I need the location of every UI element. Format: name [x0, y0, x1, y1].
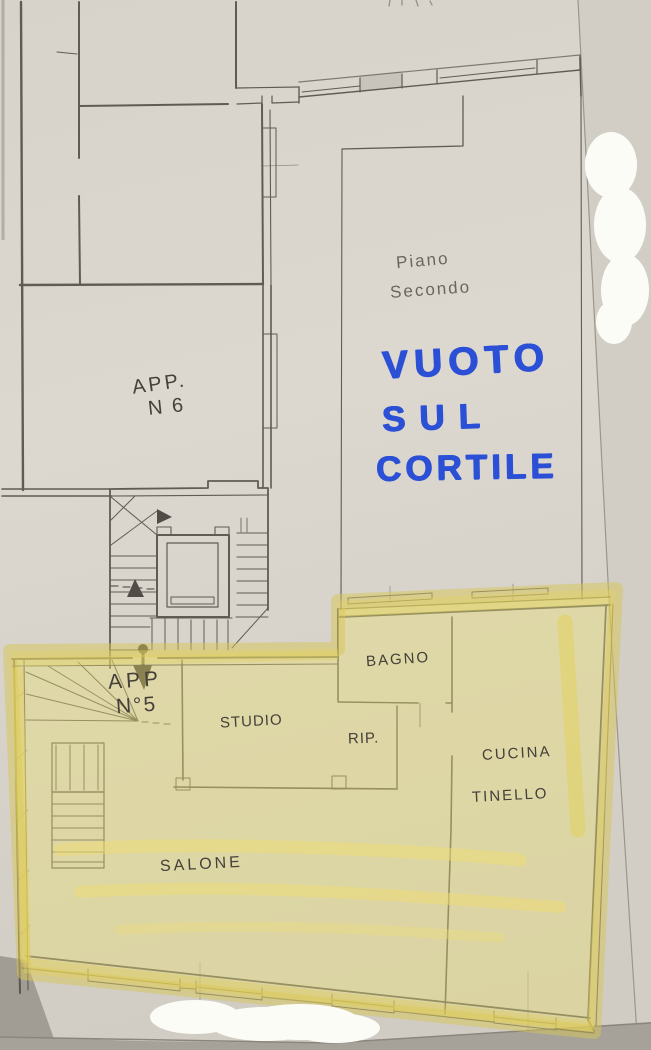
highlight-apartment5 — [10, 589, 616, 1032]
label-apartment5-line2: N°5 — [115, 694, 158, 718]
courtyard-void-walls — [299, 55, 582, 608]
label-apartment5-line1: APP — [107, 668, 162, 693]
label-closet: RIP. — [348, 730, 380, 746]
floorplan-drawing — [0, 0, 651, 1050]
label-kitchen-line2: TINELLO — [472, 786, 549, 805]
floorplan-photo: Piano Secondo VUOTO SUL CORTILE APP. N 6… — [0, 0, 651, 1050]
marker-note-line1: VUOTO — [381, 338, 551, 386]
stairwell — [110, 481, 268, 668]
label-bathroom: BAGNO — [366, 650, 431, 669]
label-study: STUDIO — [220, 712, 283, 730]
label-floor-line1: Piano — [395, 250, 450, 272]
label-apartment6-line2: N 6 — [147, 395, 186, 419]
label-kitchen-line1: CUCINA — [482, 744, 552, 763]
marker-note-line3: CORTILE — [376, 448, 558, 486]
marker-note-line2: SUL — [381, 398, 494, 437]
stair-direction-arrow-right — [157, 509, 172, 524]
